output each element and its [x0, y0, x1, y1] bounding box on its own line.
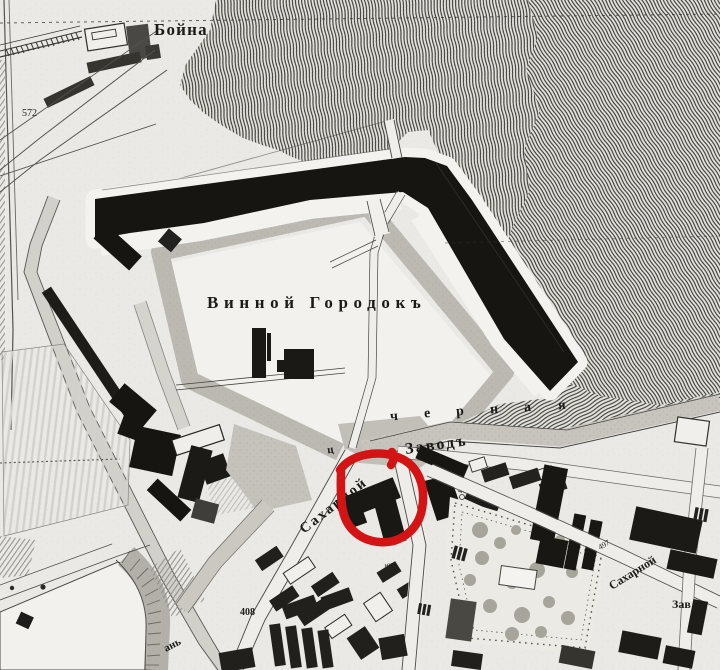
svg-text:н: н — [489, 402, 498, 418]
svg-text:Зав: Зав — [672, 597, 691, 611]
svg-text:Бойна: Бойна — [154, 20, 208, 39]
svg-text:р: р — [455, 404, 464, 420]
svg-text:е: е — [423, 406, 431, 421]
svg-text:572: 572 — [22, 108, 37, 119]
svg-text:ч: ч — [389, 409, 398, 425]
svg-text:юз: юз — [384, 560, 395, 570]
svg-text:а: а — [523, 400, 531, 416]
svg-text:408: 408 — [240, 607, 255, 618]
svg-text:Винной Городокъ: Винной Городокъ — [207, 293, 426, 312]
